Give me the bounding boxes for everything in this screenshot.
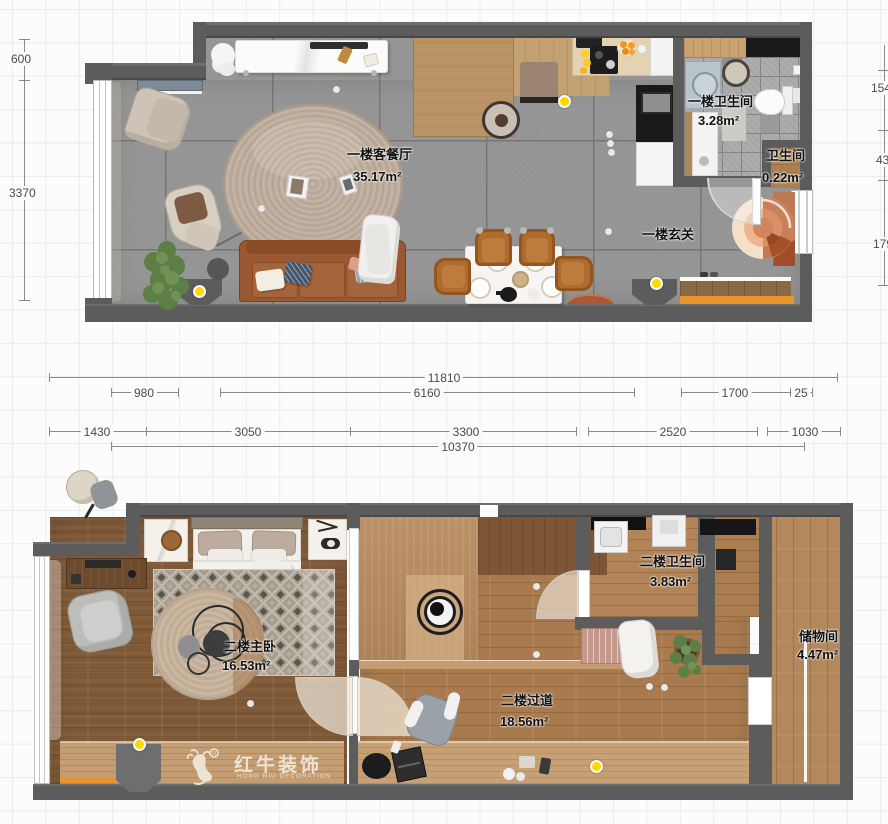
svg-text:R: R [212,752,217,758]
